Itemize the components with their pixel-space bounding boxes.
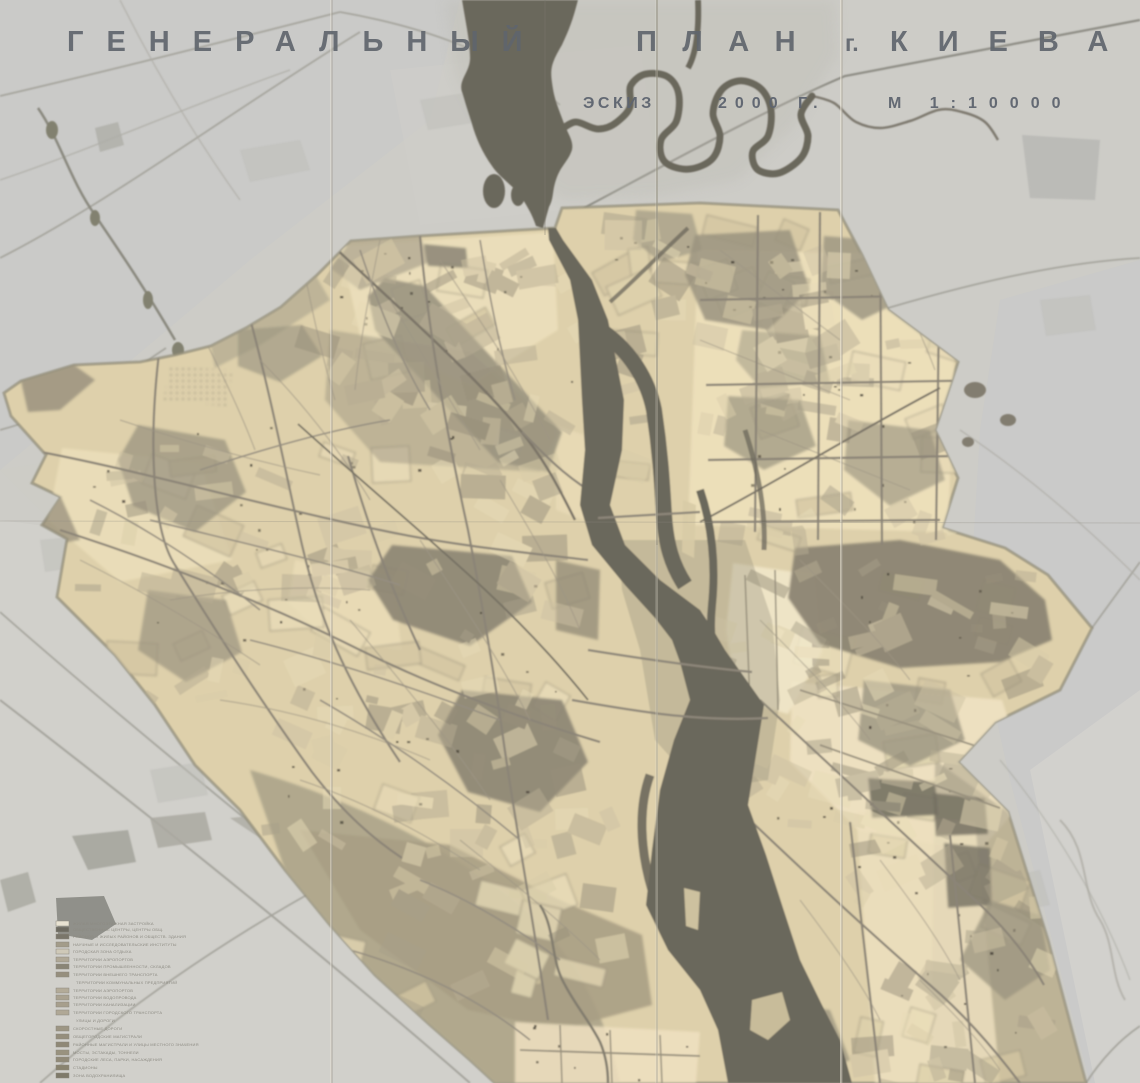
- svg-text:ГЕНЕРАЛЬНЫЙ: ГЕНЕРАЛЬНЫЙ: [67, 24, 546, 58]
- svg-text:ТЕРРИТОРИИ ГОРОДСКОГО ТРАНСПОР: ТЕРРИТОРИИ ГОРОДСКОГО ТРАНСПОРТА: [73, 1010, 162, 1015]
- svg-text:ОБЩЕГОРОДСКИЕ МАГИСТРАЛИ: ОБЩЕГОРОДСКИЕ МАГИСТРАЛИ: [73, 1034, 142, 1039]
- svg-text:ГОРОДСКАЯ ЗОНА ОТДЫХА: ГОРОДСКАЯ ЗОНА ОТДЫХА: [73, 949, 132, 954]
- svg-text:ТЕРРИТОРИИ КАНАЛИЗАЦИИ: ТЕРРИТОРИИ КАНАЛИЗАЦИИ: [73, 1002, 136, 1007]
- svg-text:ОБЩЕСТВЕННЫЕ ЦЕНТРЫ, ЦЕНТРЫ ОБ: ОБЩЕСТВЕННЫЕ ЦЕНТРЫ, ЦЕНТРЫ ОБЩ.: [73, 927, 163, 932]
- svg-text:г.: г.: [845, 30, 859, 56]
- svg-text:ГОРОДСКИЕ ЛЕСА, ПАРКИ, НАСАЖДЕ: ГОРОДСКИЕ ЛЕСА, ПАРКИ, НАСАЖДЕНИЯ: [73, 1057, 162, 1062]
- svg-text:ТЕРРИТОРИИ АЭРОПОРТОВ: ТЕРРИТОРИИ АЭРОПОРТОВ: [73, 957, 133, 962]
- svg-text:ЗОНА ВОДОХРАНИЛИЩА: ЗОНА ВОДОХРАНИЛИЩА: [73, 1073, 125, 1078]
- svg-text:НАУЧНЫЕ И ИССЛЕДОВАТЕЛЬСКИЕ ИН: НАУЧНЫЕ И ИССЛЕДОВАТЕЛЬСКИЕ ИНСТИТУТЫ: [73, 942, 177, 947]
- svg-text:СТАДИОНЫ: СТАДИОНЫ: [73, 1065, 98, 1070]
- svg-text:2000 Г.: 2000 Г.: [718, 95, 826, 112]
- svg-text:ТЕРРИТОРИИ КОММУНАЛЬНЫХ ПРЕДПР: ТЕРРИТОРИИ КОММУНАЛЬНЫХ ПРЕДПРИЯТИЙ: [76, 980, 177, 985]
- svg-text:ТЕРРИТОРИИ ВОДОПРОВОДА: ТЕРРИТОРИИ ВОДОПРОВОДА: [73, 995, 137, 1000]
- svg-text:РАЙОНОВ И ЖИЛЫХ РАЙОНОВ И ОБЩЕ: РАЙОНОВ И ЖИЛЫХ РАЙОНОВ И ОБЩЕСТВ. ЗДАНИ…: [73, 934, 186, 939]
- svg-text:СКОРОСТНЫЕ ДОРОГИ: СКОРОСТНЫЕ ДОРОГИ: [73, 1026, 122, 1031]
- svg-text:М 1:10000: М 1:10000: [888, 95, 1073, 112]
- svg-text:КИЕВА: КИЕВА: [890, 26, 1138, 58]
- svg-text:УЛИЦЫ И ДОРОГИ: УЛИЦЫ И ДОРОГИ: [76, 1018, 115, 1023]
- svg-text:ПЛАН: ПЛАН: [636, 26, 821, 58]
- svg-text:РАЙОННЫЕ МАГИСТРАЛИ И УЛИЦЫ МЕ: РАЙОННЫЕ МАГИСТРАЛИ И УЛИЦЫ МЕСТНОГО ЗНА…: [73, 1042, 199, 1047]
- svg-text:ТЕРРИТОРИИ ВНЕШНЕГО ТРАНСПОРТА: ТЕРРИТОРИИ ВНЕШНЕГО ТРАНСПОРТА: [73, 972, 158, 977]
- svg-text:ТЕРРИТОРИИ АЭРОПОРТОВ: ТЕРРИТОРИИ АЭРОПОРТОВ: [73, 988, 133, 993]
- svg-text:ЖИЛАЯ МНОГОЭТАЖНАЯ ЗАСТРОЙКА: ЖИЛАЯ МНОГОЭТАЖНАЯ ЗАСТРОЙКА: [73, 921, 154, 926]
- svg-text:ТЕРРИТОРИИ ПРОМЫШЛЕННОСТИ, СКЛ: ТЕРРИТОРИИ ПРОМЫШЛЕННОСТИ, СКЛАДОВ: [73, 964, 171, 969]
- svg-text:ЭСКИЗ: ЭСКИЗ: [583, 95, 655, 112]
- svg-text:МОСТЫ, ЭСТАКАДЫ, ТОННЕЛИ: МОСТЫ, ЭСТАКАДЫ, ТОННЕЛИ: [73, 1050, 139, 1055]
